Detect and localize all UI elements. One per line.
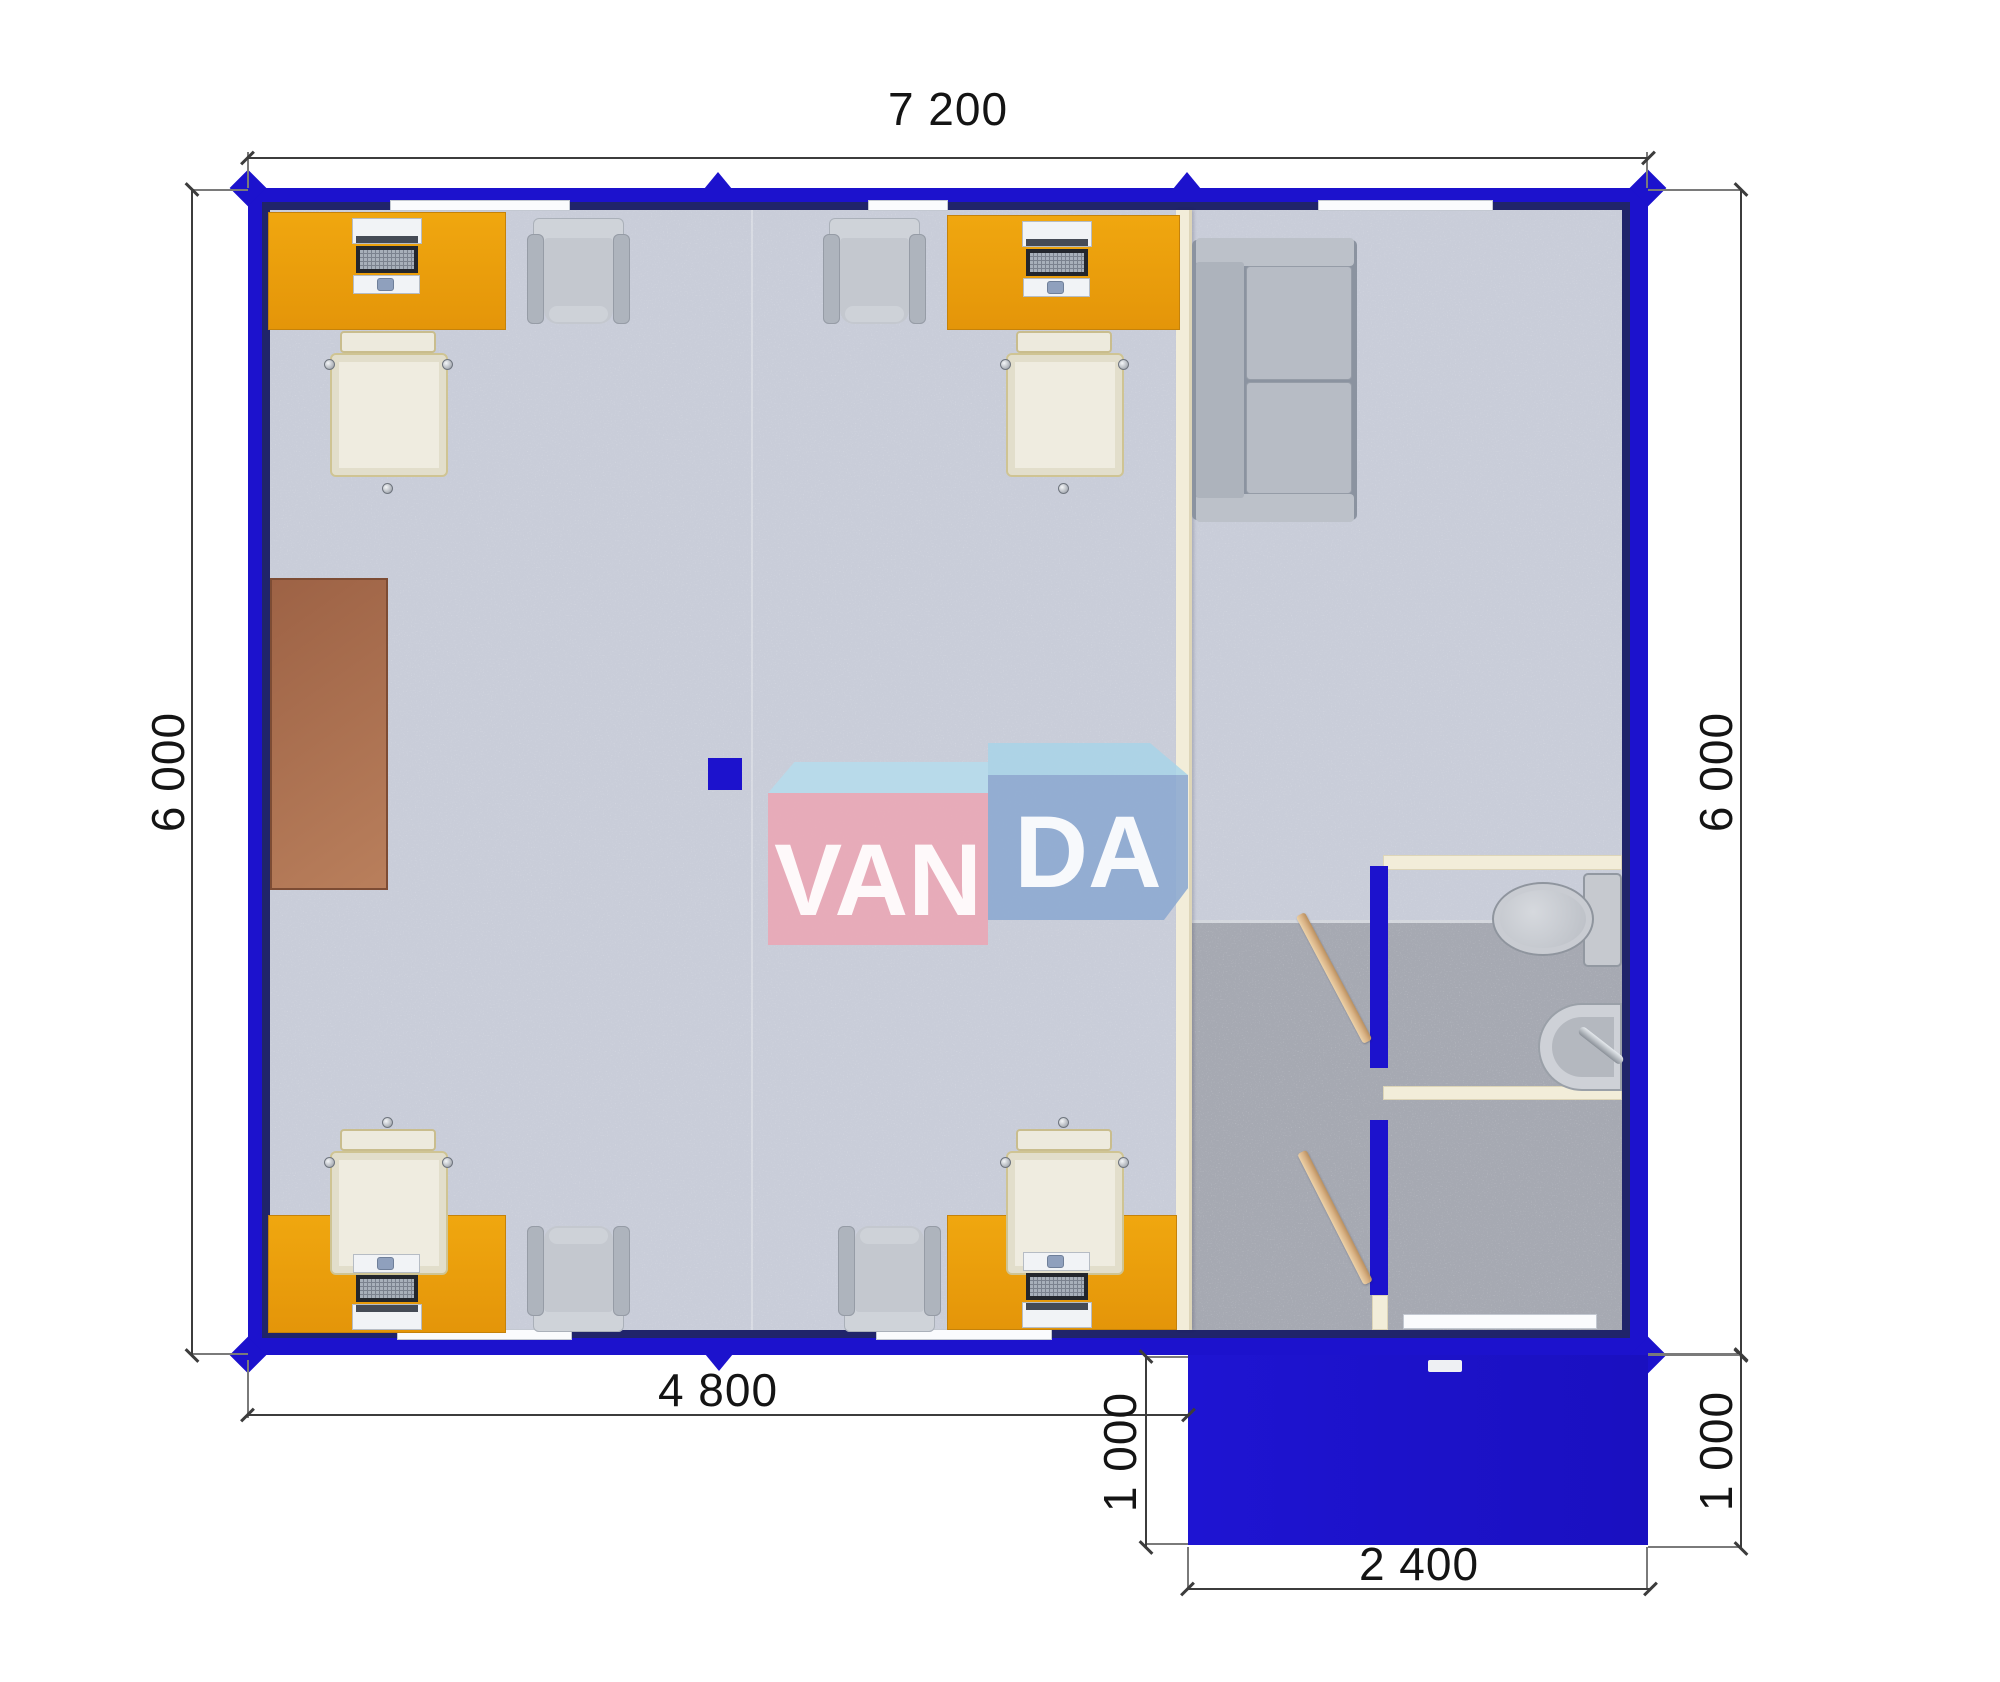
toilet-bowl [1492, 882, 1594, 956]
armrest [613, 1226, 630, 1316]
armchair-front [549, 306, 608, 322]
bathroom-wall-north [1383, 855, 1622, 870]
screen-icon [356, 1305, 418, 1312]
chair-wheel [1000, 359, 1011, 370]
chair-wheel [1118, 1157, 1129, 1168]
dimension-label-right: 6 000 [1691, 672, 1741, 872]
dimension-label-left: 6 000 [143, 672, 193, 872]
computer-icon-top-left [352, 218, 422, 294]
visitor-chair-bottom-1 [527, 1226, 630, 1332]
dimension-label-porch-depth-left: 1 000 [1095, 1352, 1145, 1552]
office-chair-top-left [330, 331, 448, 499]
computer-icon-bottom-left [352, 1254, 422, 1330]
armrest [823, 234, 840, 324]
extension-line [191, 1353, 248, 1355]
chair-backrest [340, 1129, 436, 1151]
chair-backrest [340, 331, 436, 353]
bathroom-wall-west-end [1372, 1295, 1388, 1330]
screen-icon [356, 236, 418, 243]
armrest [613, 234, 630, 324]
computer-icon-bottom-right [1022, 1252, 1092, 1328]
dimension-label-porch-depth-right: 1 000 [1691, 1351, 1741, 1551]
chair-wheel [382, 1117, 393, 1128]
computer-icon-top-right [1022, 221, 1092, 297]
toilet-icon [1492, 873, 1622, 969]
chair-wheel [324, 1157, 335, 1168]
extension-line [1187, 1547, 1189, 1590]
armchair-front [860, 1228, 919, 1244]
extension-line [1145, 1356, 1188, 1358]
armrest [924, 1226, 941, 1316]
sofa-backrest [1196, 262, 1244, 498]
chair-wheel [1058, 483, 1069, 494]
sink-icon [1538, 1003, 1622, 1091]
porch-step-mark [1428, 1360, 1462, 1372]
chair-backrest [1016, 331, 1112, 353]
window-top-2 [868, 200, 948, 211]
armrest [838, 1226, 855, 1316]
dimension-label-office-width: 4 800 [618, 1365, 818, 1415]
screen-icon [1026, 239, 1088, 246]
dimension-line-top [248, 157, 1648, 159]
office-chair-top-right [1006, 331, 1124, 499]
chair-backrest [1016, 1129, 1112, 1151]
screen-icon [1026, 1303, 1088, 1310]
armrest [527, 1226, 544, 1316]
chair-wheel [1118, 359, 1129, 370]
chair-seat [1006, 353, 1124, 477]
sofa-cushion [1246, 382, 1352, 494]
keyboard-icon [1026, 249, 1088, 276]
sofa-armrest [1196, 494, 1354, 522]
extension-line [1648, 189, 1742, 191]
mouse-icon [377, 278, 394, 291]
dimension-label-porch-width: 2 400 [1319, 1539, 1519, 1589]
chair-wheel [382, 483, 393, 494]
module-joint-top-2 [1173, 172, 1201, 189]
extension-line [1646, 1547, 1648, 1590]
module-joint-top-1 [704, 172, 732, 189]
chair-wheel [1058, 1117, 1069, 1128]
visitor-chair-top-1 [527, 218, 630, 324]
armchair-front [845, 306, 904, 322]
visitor-chair-bottom-2 [838, 1226, 941, 1332]
keyboard-icon [356, 1275, 418, 1302]
extension-line [191, 189, 248, 191]
armrest [527, 234, 544, 324]
visitor-chair-top-2 [823, 218, 926, 324]
dimension-label-top: 7 200 [848, 84, 1048, 134]
chair-seat [330, 353, 448, 477]
chair-wheel [324, 359, 335, 370]
window-top-1 [390, 200, 570, 211]
partition-wall [1176, 210, 1192, 1330]
mouse-icon [1047, 1255, 1064, 1268]
extension-line [1145, 1543, 1188, 1545]
window-top-3 [1318, 200, 1493, 211]
chair-wheel [442, 1157, 453, 1168]
entrance-porch [1188, 1355, 1648, 1545]
bathroom-wall-west-upper [1370, 866, 1388, 1068]
keyboard-icon [356, 246, 418, 273]
bathroom-wall-west-lower [1370, 1120, 1388, 1295]
floor-plan-canvas: VAN DA 7 200 6 000 6 000 4 800 1 000 2 4… [0, 0, 2000, 1682]
chair-wheel [1000, 1157, 1011, 1168]
sofa-cushion [1246, 266, 1352, 380]
mouse-icon [377, 1257, 394, 1270]
floor-marker [708, 758, 742, 790]
extension-line [247, 1360, 249, 1418]
armrest [909, 234, 926, 324]
sofa [1192, 238, 1358, 522]
armchair-front [549, 1228, 608, 1244]
cabinet [270, 578, 388, 890]
entrance-door [1403, 1314, 1597, 1329]
mouse-icon [1047, 281, 1064, 294]
keyboard-icon [1026, 1273, 1088, 1300]
floor-speckle-texture [270, 210, 1622, 1330]
chair-wheel [442, 359, 453, 370]
